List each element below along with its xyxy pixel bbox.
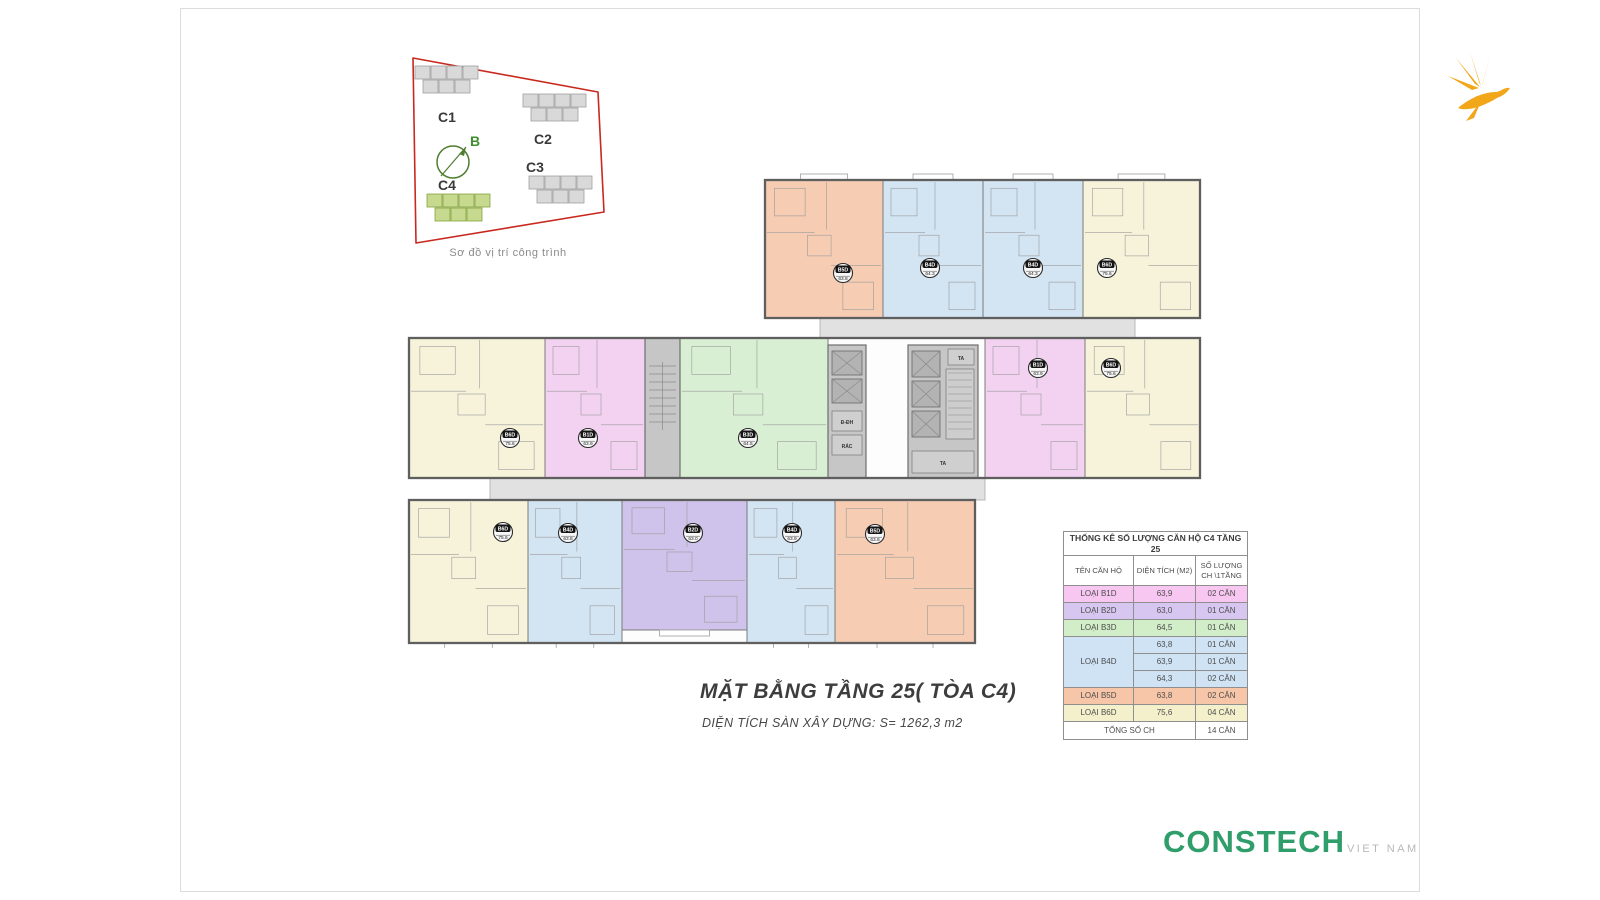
site-building-C2 (523, 94, 586, 121)
apartment-unit-B6D (409, 338, 545, 478)
plan-graphic (539, 94, 554, 107)
plan-graphic: 63.8 (870, 537, 880, 543)
stats-table-cell: 14 CĂN (1196, 722, 1248, 740)
core-stair (645, 338, 680, 478)
apartment-unit-B4D (747, 500, 835, 648)
plan-graphic: B6D (498, 526, 509, 532)
plan-graphic (547, 108, 562, 121)
plan-graphic (983, 180, 1083, 318)
apartment-unit-B4D (983, 174, 1083, 318)
plan-graphic (946, 369, 974, 439)
apartment-unit-B5D (765, 174, 883, 318)
plan-graphic: B5D (838, 267, 849, 273)
stats-table-cell: LOẠI B1D (1064, 586, 1134, 603)
site-building-label: C2 (534, 131, 552, 147)
plan-graphic (1085, 338, 1200, 478)
plan-graphic: RÁC (842, 443, 853, 450)
plan-graphic (835, 500, 975, 643)
plan-graphic (1083, 180, 1200, 318)
apartment-unit-B6D (1085, 338, 1200, 478)
corridor (490, 478, 985, 500)
plan-graphic: 75.6 (505, 441, 515, 447)
apartment-stats-table: THỐNG KÊ SỐ LƯỢNG CĂN HỘ C4 TẦNG 25TÊN C… (1063, 531, 1248, 740)
plan-graphic: B6D (1106, 362, 1117, 368)
stats-table-cell: 02 CĂN (1196, 671, 1248, 688)
plan-graphic: B6D (505, 432, 516, 438)
stats-table-cell: LOẠI B3D (1064, 620, 1134, 637)
plan-graphic: 75.6 (1102, 271, 1112, 277)
unit-badge-B6D: B6D75.6 (1098, 259, 1117, 278)
stats-table-cell: 01 CĂN (1196, 654, 1248, 671)
plan-graphic: 64.3 (925, 271, 935, 277)
plan-graphic: 63.0 (688, 536, 698, 542)
plan-graphic (431, 66, 446, 79)
plan-graphic (563, 108, 578, 121)
plan-graphic: B2D (688, 527, 699, 533)
stats-table-cell: THỐNG KÊ SỐ LƯỢNG CĂN HỘ C4 TẦNG 25 (1064, 532, 1248, 556)
plan-graphic (523, 94, 538, 107)
plan-graphic: 75.6 (498, 535, 508, 541)
stats-table-cell: LOẠI B5D (1064, 688, 1134, 705)
stats-table-cell: 75,6 (1134, 705, 1196, 722)
core-lift3: TATA (908, 345, 978, 478)
plan-graphic (447, 66, 462, 79)
stats-table-cell: 04 CĂN (1196, 705, 1248, 722)
plan-graphic: 63.9 (583, 441, 593, 447)
unit-badge-B1D: B1D63.9 (579, 429, 598, 448)
plan-graphic: B4D (563, 527, 574, 533)
plan-area-subtitle: DIỆN TÍCH SÀN XÂY DỰNG: S= 1262,3 m2 (702, 716, 1016, 730)
stats-table-cell: TỔNG SỐ CH (1064, 722, 1196, 740)
plan-graphic: TA (958, 356, 965, 362)
plan-graphic (463, 66, 478, 79)
plan-graphic: B5D (870, 528, 881, 534)
unit-badge-B6D: B6D75.6 (1102, 359, 1121, 378)
balcony (660, 630, 710, 636)
plan-graphic (571, 94, 586, 107)
apartment-stats-table-wrap: THỐNG KÊ SỐ LƯỢNG CĂN HỘ C4 TẦNG 25TÊN C… (1063, 531, 1247, 740)
unit-badge-B6D: B6D75.6 (494, 523, 513, 542)
stats-table-cell: 01 CĂN (1196, 637, 1248, 654)
unit-badge-B1D: B1D63.9 (1029, 359, 1048, 378)
unit-badge-B2D: B2D63.0 (684, 524, 703, 543)
constech-logo: CONSTECHVIET NAM (1163, 824, 1419, 860)
stats-table-cell: 63,8 (1134, 688, 1196, 705)
apartment-unit-B4D (883, 174, 983, 318)
site-building-label: C1 (438, 109, 456, 125)
stats-table-cell: 64,5 (1134, 620, 1196, 637)
plan-graphic (409, 338, 545, 478)
plan-graphic: 64.5 (743, 441, 753, 447)
plan-graphic (883, 180, 983, 318)
apartment-unit-B6D (1083, 174, 1200, 318)
unit-badge-B3D: B3D64.5 (739, 429, 758, 448)
stats-table-cell: LOẠI B6D (1064, 705, 1134, 722)
apartment-unit-B5D (835, 500, 975, 648)
apartment-unit-B1D (545, 338, 645, 478)
unit-badge-B4D: B4D63.9 (783, 524, 802, 543)
plan-graphic (528, 500, 622, 643)
stats-table-cell: TÊN CĂN HỘ (1064, 556, 1134, 586)
plan-graphic: B4D (787, 527, 798, 533)
plan-graphic: B4D (925, 262, 936, 268)
bird-logo-icon (1446, 50, 1516, 125)
plan-graphic (680, 338, 828, 478)
plan-graphic: B1D (583, 432, 594, 438)
stats-table-cell: 64,3 (1134, 671, 1196, 688)
plan-graphic (1482, 56, 1490, 86)
plan-graphic (455, 80, 470, 93)
stats-table-cell: 01 CĂN (1196, 620, 1248, 637)
stats-table-cell: 63,9 (1134, 654, 1196, 671)
plan-graphic: 64.3 (1028, 271, 1038, 277)
stats-table-cell: 63,9 (1134, 586, 1196, 603)
stats-table-cell: SỐ LƯỢNG CH \1TẦNG (1196, 556, 1248, 586)
plan-graphic: B4D (1028, 262, 1039, 268)
stats-table-cell: LOẠI B2D (1064, 603, 1134, 620)
unit-badge-B5D: B5D63.8 (834, 264, 853, 283)
stats-table-cell: 02 CĂN (1196, 688, 1248, 705)
apartment-unit-B2D (622, 500, 747, 636)
plan-graphic: Đ-ĐH (841, 420, 854, 426)
core-lift2: Đ-ĐHRÁC (828, 345, 866, 478)
stats-table-cell: 63,0 (1134, 603, 1196, 620)
bird-shape (1448, 52, 1510, 121)
plan-graphic (555, 94, 570, 107)
brand-name: CONSTECH (1163, 824, 1345, 859)
title-block: MẶT BẰNG TẦNG 25( TÒA C4) DIỆN TÍCH SÀN … (700, 680, 1016, 730)
plan-graphic: B6D (1102, 262, 1113, 268)
plan-graphic: B3D (743, 432, 754, 438)
page-canvas: C1C2C3C4BSơ đồ vị trí công trình Đ-ĐHRÁC… (0, 0, 1600, 900)
apartment-unit-B3D (680, 338, 828, 478)
plan-graphic (1470, 52, 1481, 86)
stats-table-cell: 01 CĂN (1196, 603, 1248, 620)
plan-graphic: 63.8 (563, 536, 573, 542)
plan-graphic (765, 180, 883, 318)
unit-badge-B4D: B4D63.8 (559, 524, 578, 543)
unit-badge-B4D: B4D64.3 (1024, 259, 1043, 278)
plan-graphic (545, 338, 645, 478)
unit-badge-B4D: B4D64.3 (921, 259, 940, 278)
stats-table-cell: 02 CĂN (1196, 586, 1248, 603)
plan-graphic (415, 66, 430, 79)
apartment-unit-B6D (409, 500, 528, 648)
plan-graphic: 63.9 (787, 536, 797, 542)
north-label: B (470, 133, 480, 149)
apartment-unit-B4D (528, 500, 622, 648)
plan-graphic (747, 500, 835, 643)
plan-graphic (622, 500, 747, 630)
stats-table-cell: DIỆN TÍCH (M2) (1134, 556, 1196, 586)
plan-graphic: 75.6 (1106, 371, 1116, 377)
unit-badge-B6D: B6D75.6 (501, 429, 520, 448)
plan-graphic: 63.8 (838, 276, 848, 282)
plan-graphic (531, 108, 546, 121)
plan-graphic: B1D (1033, 362, 1044, 368)
site-building-C1 (415, 66, 478, 93)
plan-graphic: 63.9 (1033, 371, 1043, 377)
unit-badge-B5D: B5D63.8 (866, 525, 885, 544)
plan-graphic (423, 80, 438, 93)
stats-table-cell: 63,8 (1134, 637, 1196, 654)
stats-table-cell: LOẠI B4D (1064, 637, 1134, 688)
plan-title: MẶT BẰNG TẦNG 25( TÒA C4) (700, 680, 1016, 704)
plan-graphic: TA (940, 461, 947, 467)
brand-suffix: VIET NAM (1347, 843, 1419, 855)
plan-graphic (439, 80, 454, 93)
plan-graphic (409, 500, 528, 643)
